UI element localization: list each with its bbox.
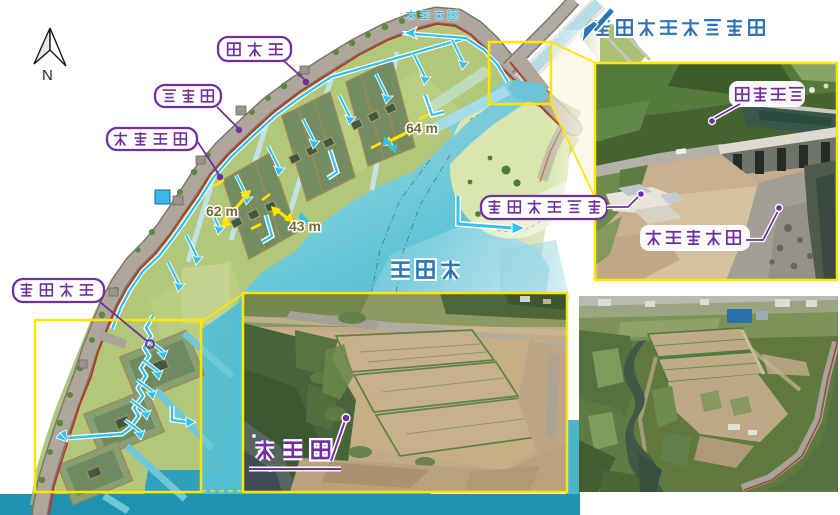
svg-text:62 m: 62 m [206,203,238,219]
svg-text:43 m: 43 m [289,218,321,234]
svg-text:64 m: 64 m [406,120,438,136]
svg-text:N: N [42,67,53,84]
